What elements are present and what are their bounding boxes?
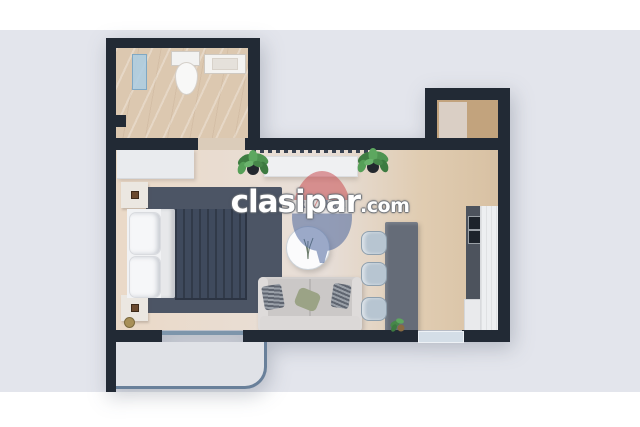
small-plant-icon: [389, 317, 407, 333]
kitchen-island: [385, 222, 418, 332]
remax-balloon-tail: [313, 245, 331, 263]
bed-duvet: [175, 209, 247, 300]
wall: [106, 38, 260, 48]
balcony-glass-door: [162, 331, 243, 335]
floorplan-image: RE/MAX clasipar.com: [0, 0, 640, 427]
potted-plant-icon: [356, 148, 390, 180]
bar-stool: [361, 231, 387, 255]
potted-plant-icon: [236, 150, 270, 182]
entry-window: [418, 331, 464, 343]
wall: [106, 138, 198, 150]
curtain-track: [252, 150, 372, 153]
wall: [116, 115, 126, 127]
balcony-floor: [116, 342, 267, 389]
throw-pillow-striped: [261, 283, 285, 310]
bed-sheet-fold: [161, 209, 175, 298]
bathroom-door-opening: [198, 138, 245, 150]
watermark-suffix-text: .com: [360, 195, 409, 217]
watermark-brand-text: clasipar: [231, 184, 360, 220]
bar-stool: [361, 297, 387, 321]
shower-glass: [132, 54, 147, 90]
wall: [248, 38, 260, 140]
nightstand-bottom: [121, 295, 148, 321]
bed-pillow: [129, 256, 161, 298]
wall: [116, 330, 162, 342]
clasipar-watermark: clasipar.com: [0, 184, 640, 220]
throw-pillow-striped: [330, 283, 351, 309]
bar-stool: [361, 262, 387, 286]
wall: [462, 330, 498, 342]
bathroom-sink: [204, 54, 246, 74]
closet-cabinet: [439, 102, 467, 138]
wardrobe: [117, 149, 194, 179]
floor-decor: [124, 317, 135, 328]
wall: [425, 88, 437, 140]
sofa: [258, 277, 362, 332]
